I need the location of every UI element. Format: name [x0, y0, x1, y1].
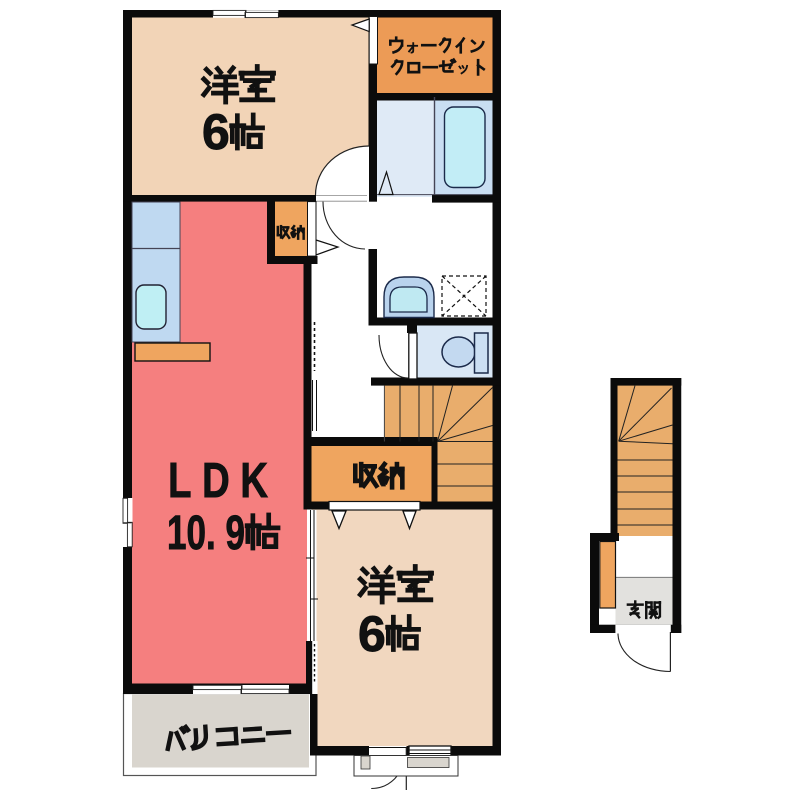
- svg-text:LDK: LDK: [168, 454, 268, 509]
- svg-text:6: 6: [358, 606, 386, 662]
- svg-text:6: 6: [202, 104, 230, 160]
- svg-text:10. 9: 10. 9: [167, 507, 245, 560]
